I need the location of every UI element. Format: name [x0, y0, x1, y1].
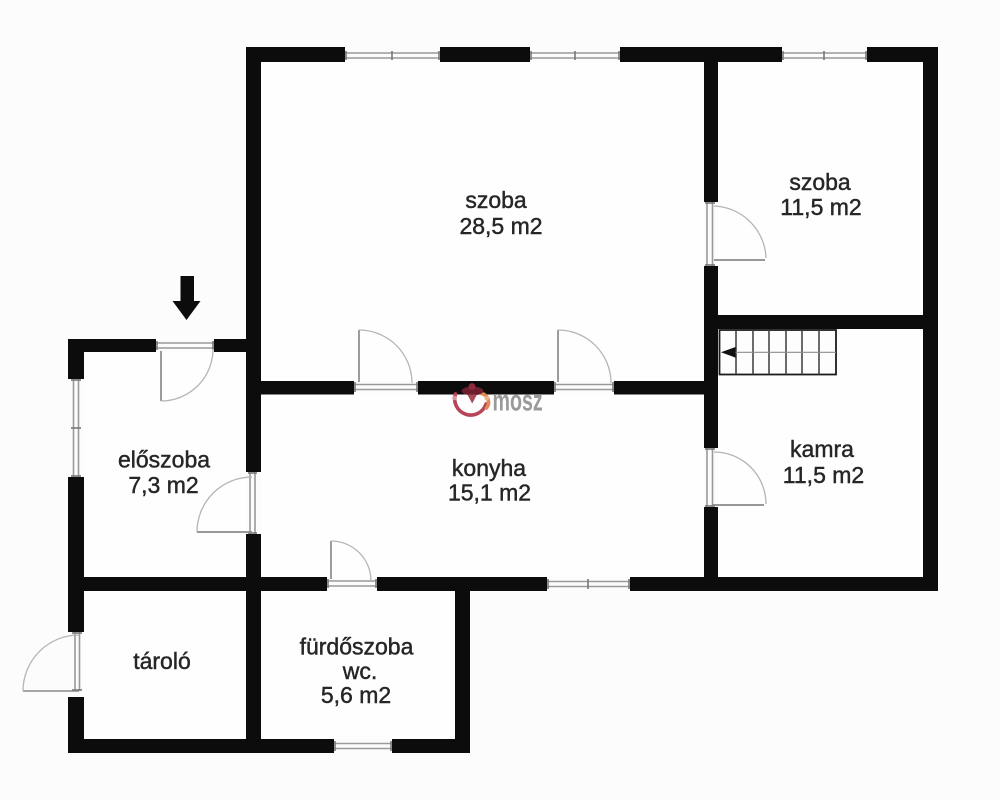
- svg-text:11,5 m2: 11,5 m2: [783, 462, 864, 488]
- svg-text:szoba: szoba: [465, 187, 527, 213]
- svg-text:szoba: szoba: [789, 169, 851, 195]
- svg-text:előszoba: előszoba: [118, 447, 210, 473]
- svg-text:15,1 m2: 15,1 m2: [448, 480, 531, 506]
- svg-text:28,5 m2: 28,5 m2: [459, 213, 542, 239]
- svg-text:konyha: konyha: [452, 455, 526, 481]
- svg-text:tároló: tároló: [133, 648, 191, 674]
- svg-text:11,5 m2: 11,5 m2: [780, 194, 861, 220]
- svg-text:mosz: mosz: [493, 384, 543, 417]
- svg-text:7,3 m2: 7,3 m2: [128, 472, 198, 498]
- svg-text:fürdőszoba: fürdőszoba: [300, 634, 414, 660]
- svg-text:kamra: kamra: [790, 436, 854, 462]
- svg-text:wc.: wc.: [342, 658, 378, 684]
- svg-text:5,6 m2: 5,6 m2: [321, 682, 391, 708]
